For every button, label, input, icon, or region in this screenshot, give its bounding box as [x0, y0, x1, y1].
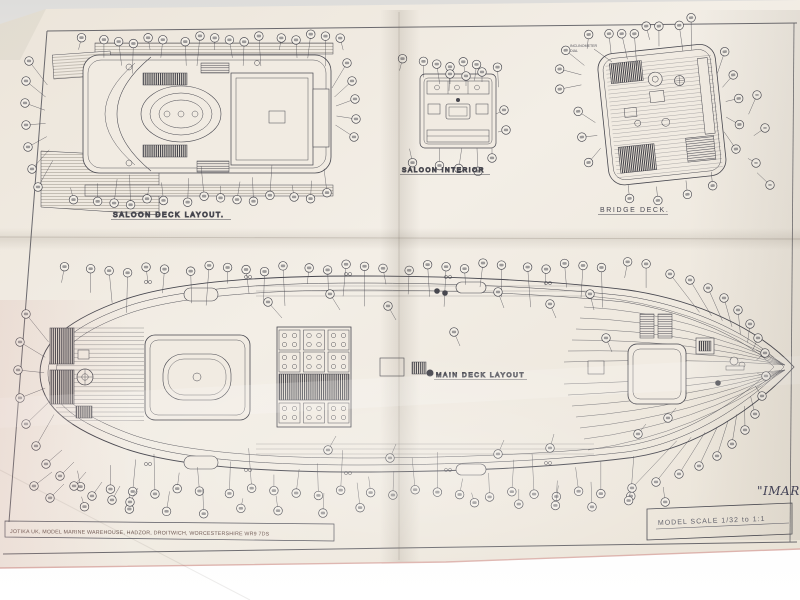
- callout-number: [36, 186, 39, 188]
- callout-number: [326, 269, 329, 271]
- callout-number: [544, 268, 547, 270]
- callout-number: [24, 80, 27, 82]
- inclinometer-label-1: INCLINOMETER: [570, 44, 598, 48]
- callout-number: [344, 263, 347, 265]
- callout-number: [263, 271, 266, 273]
- callout-number: [189, 270, 192, 272]
- callout-number: [656, 199, 660, 201]
- callout-number: [490, 157, 493, 159]
- callout-number: [72, 199, 75, 201]
- callout-number: [464, 75, 467, 77]
- callout-number: [219, 197, 222, 199]
- callout-number: [558, 68, 562, 70]
- grating: [609, 60, 643, 83]
- callout-number: [96, 201, 99, 203]
- callout-number: [207, 265, 210, 267]
- callout-number: [548, 303, 551, 305]
- callout-number: [564, 49, 568, 51]
- aft-lobby: [313, 89, 329, 147]
- callout-number: [107, 270, 110, 272]
- callout-number: [325, 192, 328, 194]
- cowl-vent: [434, 288, 440, 294]
- callout-number: [242, 41, 245, 43]
- stair: [201, 63, 229, 73]
- callout-number: [588, 293, 591, 295]
- callout-number: [328, 293, 331, 295]
- callout-number: [644, 263, 647, 265]
- callout-number: [604, 337, 607, 339]
- callout-number: [161, 39, 164, 41]
- callout-number: [226, 267, 229, 269]
- callout-number: [475, 64, 478, 66]
- callout-number: [23, 102, 26, 104]
- callout-number: [352, 136, 355, 138]
- callout-number: [426, 264, 429, 266]
- callout-number: [496, 291, 499, 293]
- callout-number: [30, 168, 33, 170]
- callout-number: [252, 200, 255, 202]
- callout-number: [580, 136, 584, 138]
- callout-number: [112, 202, 115, 204]
- callout-number: [422, 61, 425, 63]
- callout-number: [600, 267, 603, 269]
- callout-number: [213, 37, 216, 39]
- callout-number: [444, 266, 447, 268]
- callout-number: [448, 66, 451, 68]
- grating: [143, 73, 187, 85]
- callout-number: [198, 35, 201, 37]
- callout-number: [24, 124, 27, 126]
- center-glow: [100, 350, 740, 590]
- callout-number: [80, 37, 83, 39]
- callout-number: [129, 204, 132, 206]
- callout-number: [244, 269, 247, 271]
- callout-number: [363, 265, 366, 267]
- column: [456, 98, 460, 102]
- saloon-deck-title: SALOON DECK LAYOUT.: [113, 212, 225, 219]
- plan-sheet-photo: SALOON DECK LAYOUT. SALOON INTERIOR: [0, 0, 800, 600]
- inclinometer-label-2: DIAL: [570, 49, 578, 53]
- callout-number: [607, 33, 611, 35]
- callout-number: [633, 33, 637, 35]
- saloon-room: [231, 73, 313, 165]
- callout-number: [677, 24, 681, 26]
- grating: [618, 144, 657, 174]
- callout-number: [628, 197, 632, 199]
- horizontal-fold-shade: [0, 228, 800, 250]
- callout-number: [63, 266, 66, 268]
- callout-number: [27, 60, 30, 62]
- callout-number: [257, 35, 260, 37]
- companionway: [640, 314, 654, 338]
- bridge-deck-title: BRIDGE DECK.: [600, 207, 669, 214]
- callout-number: [345, 62, 348, 64]
- callout-number: [526, 266, 529, 268]
- callout-number: [504, 129, 507, 131]
- callout-number: [668, 273, 671, 275]
- callout-number: [462, 61, 465, 63]
- callout-number: [202, 195, 205, 197]
- callout-number: [126, 272, 129, 274]
- callout-number: [339, 37, 342, 39]
- callout-number: [309, 198, 312, 200]
- callout-number: [268, 194, 271, 196]
- callout-number: [309, 33, 312, 35]
- callout-number: [324, 35, 327, 37]
- callout-number: [117, 41, 120, 43]
- callout-number: [228, 39, 231, 41]
- callout-number: [452, 331, 455, 333]
- callout-number: [145, 198, 148, 200]
- callout-number: [163, 268, 166, 270]
- callout-number: [280, 37, 283, 39]
- callout-number: [266, 301, 269, 303]
- callout-number: [146, 37, 149, 39]
- lifeboat: [184, 288, 218, 301]
- callout-number: [354, 118, 357, 120]
- grating: [143, 145, 187, 157]
- lifeboat: [456, 282, 486, 293]
- callout-number: [644, 25, 648, 27]
- callout-number: [184, 41, 187, 43]
- callout-number: [307, 267, 310, 269]
- callout-number: [576, 110, 580, 112]
- callout-number: [292, 196, 295, 198]
- pedestal: [649, 90, 664, 102]
- callout-number: [657, 25, 661, 27]
- callout-number: [162, 200, 165, 202]
- callout-number: [132, 43, 135, 45]
- callout-number: [496, 66, 499, 68]
- callout-number: [281, 265, 284, 267]
- callout-number: [463, 268, 466, 270]
- callout-number: [581, 265, 584, 267]
- callout-number: [235, 199, 238, 201]
- callout-number: [626, 261, 629, 263]
- callout-number: [435, 63, 438, 65]
- callout-number: [350, 80, 353, 82]
- callout-number: [26, 146, 29, 148]
- callout-number: [563, 263, 566, 265]
- callout-number: [500, 264, 503, 266]
- callout-number: [102, 39, 105, 41]
- callout-number: [502, 109, 505, 111]
- callout-number: [558, 88, 562, 90]
- companionway: [658, 314, 672, 338]
- callout-number: [144, 266, 147, 268]
- stair: [197, 161, 229, 172]
- left-pink-tint: [0, 300, 130, 568]
- callout-number: [587, 161, 591, 163]
- callout-number: [620, 33, 624, 35]
- callout-number: [448, 73, 451, 75]
- callout-number: [481, 262, 484, 264]
- callout-number: [353, 98, 356, 100]
- callout-number: [587, 33, 591, 35]
- callout-number: [480, 71, 483, 73]
- photo-of-ship-plan: SALOON DECK LAYOUT. SALOON INTERIOR: [0, 0, 800, 600]
- callout-number: [89, 268, 92, 270]
- callout-number: [186, 201, 189, 203]
- callout-number: [294, 39, 297, 41]
